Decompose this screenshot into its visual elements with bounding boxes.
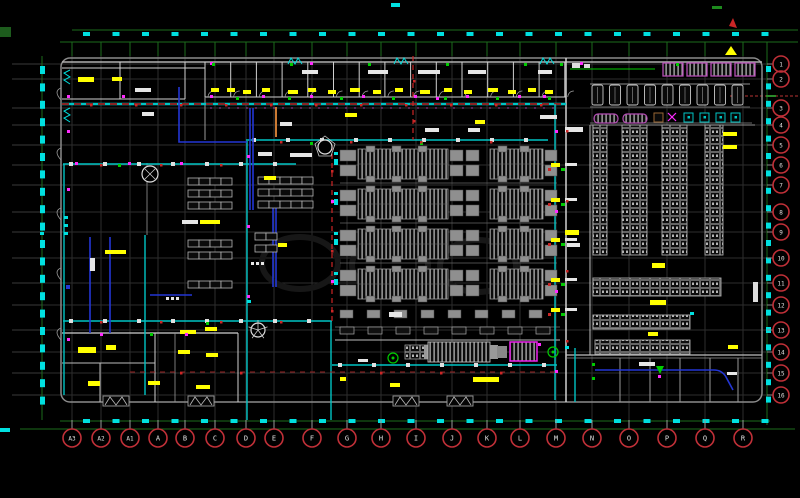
grid-bubble-1: 1 [773, 56, 789, 72]
bubble-label: R [741, 435, 746, 443]
grid-bubble-N: N [583, 429, 601, 447]
grid-bubble-H: H [372, 429, 390, 447]
bubble-label: 8 [779, 209, 783, 216]
bubble-label: E [272, 435, 276, 443]
grid-bubble-11: 11 [773, 275, 789, 291]
bubble-label: 3 [779, 105, 783, 112]
grid-bubble-7: 7 [773, 177, 789, 193]
grid-bubble-A1: A1 [121, 429, 139, 447]
bubble-label: 9 [779, 229, 783, 236]
grid-bubble-A3: A3 [63, 429, 81, 447]
bubble-label: 1 [779, 61, 783, 68]
bubble-label: 4 [779, 122, 783, 129]
grid-bubble-9: 9 [773, 224, 789, 240]
bubble-label: J [450, 435, 454, 443]
bubble-label: 10 [777, 255, 785, 262]
bubble-label: 11 [777, 280, 785, 287]
bubble-label: 6 [779, 162, 783, 169]
grid-bubble-16: 16 [773, 387, 789, 403]
grid-bubble-D: D [237, 429, 255, 447]
grid-bubble-14: 14 [773, 344, 789, 360]
grid-bubble-A: A [149, 429, 167, 447]
bubble-label: H [379, 435, 383, 443]
grid-bubble-3: 3 [773, 100, 789, 116]
bubble-label: A3 [68, 436, 76, 443]
grid-bubble-P: P [658, 429, 676, 447]
cad-viewport: A3A2A1ABCDEFGHIJKLMNOPQR1234567891011121… [0, 0, 800, 498]
grid-bubble-12: 12 [773, 297, 789, 313]
grid-bubble-10: 10 [773, 250, 789, 266]
grid-bubble-I: I [407, 429, 425, 447]
center-rack-area [334, 146, 557, 334]
grid-bubble-E: E [265, 429, 283, 447]
grid-bubble-A2: A2 [92, 429, 110, 447]
grid-bubble-Q: Q [696, 429, 714, 447]
grid-bubble-K: K [478, 429, 496, 447]
grid-bubble-15: 15 [773, 365, 789, 381]
bubble-label: F [310, 435, 314, 443]
bubble-label: Q [703, 435, 707, 443]
grid-bubble-13: 13 [773, 322, 789, 338]
bubble-label: N [590, 435, 594, 443]
bubble-label: 5 [779, 142, 783, 149]
bubble-label: A2 [97, 436, 105, 443]
grid-bubble-M: M [547, 429, 565, 447]
grid-bubble-O: O [620, 429, 638, 447]
grid-bubble-C: C [206, 429, 224, 447]
column-bubble-row: A3A2A1ABCDEFGHIJKLMNOPQR [63, 429, 752, 447]
bubble-label: B [183, 435, 187, 443]
floor-plan-drawing: A3A2A1ABCDEFGHIJKLMNOPQR1234567891011121… [0, 0, 800, 498]
bubble-label: C [213, 435, 217, 443]
grid-bubble-8: 8 [773, 204, 789, 220]
grid-bubble-F: F [303, 429, 321, 447]
bubble-label: P [665, 435, 669, 443]
bubble-label: O [627, 435, 631, 443]
row-bubble-column: 12345678910111213141516 [773, 56, 789, 403]
bubble-label: 16 [777, 392, 785, 399]
grid-bubble-L: L [511, 429, 529, 447]
bubble-label: L [518, 435, 522, 443]
bubble-label: 7 [779, 182, 783, 189]
bubble-label: 15 [777, 370, 785, 377]
grid-bubble-6: 6 [773, 157, 789, 173]
bubble-label: A [156, 435, 161, 443]
bubble-label: G [345, 435, 349, 443]
bubble-label: 2 [779, 76, 783, 83]
grid-bubble-B: B [176, 429, 194, 447]
bubble-label: A1 [126, 436, 134, 443]
grid-bubble-4: 4 [773, 117, 789, 133]
grid-bubble-2: 2 [773, 71, 789, 87]
bubble-label: M [554, 435, 558, 443]
bubble-label: I [414, 435, 418, 443]
bubble-label: 12 [777, 302, 785, 309]
grid-bubble-J: J [443, 429, 461, 447]
grid-bubble-R: R [734, 429, 752, 447]
grid-bubble-G: G [338, 429, 356, 447]
bubble-label: 13 [777, 327, 785, 334]
bubble-label: K [485, 435, 490, 443]
bubble-label: D [244, 435, 248, 443]
grid-bubble-5: 5 [773, 137, 789, 153]
bubble-label: 14 [777, 349, 785, 356]
